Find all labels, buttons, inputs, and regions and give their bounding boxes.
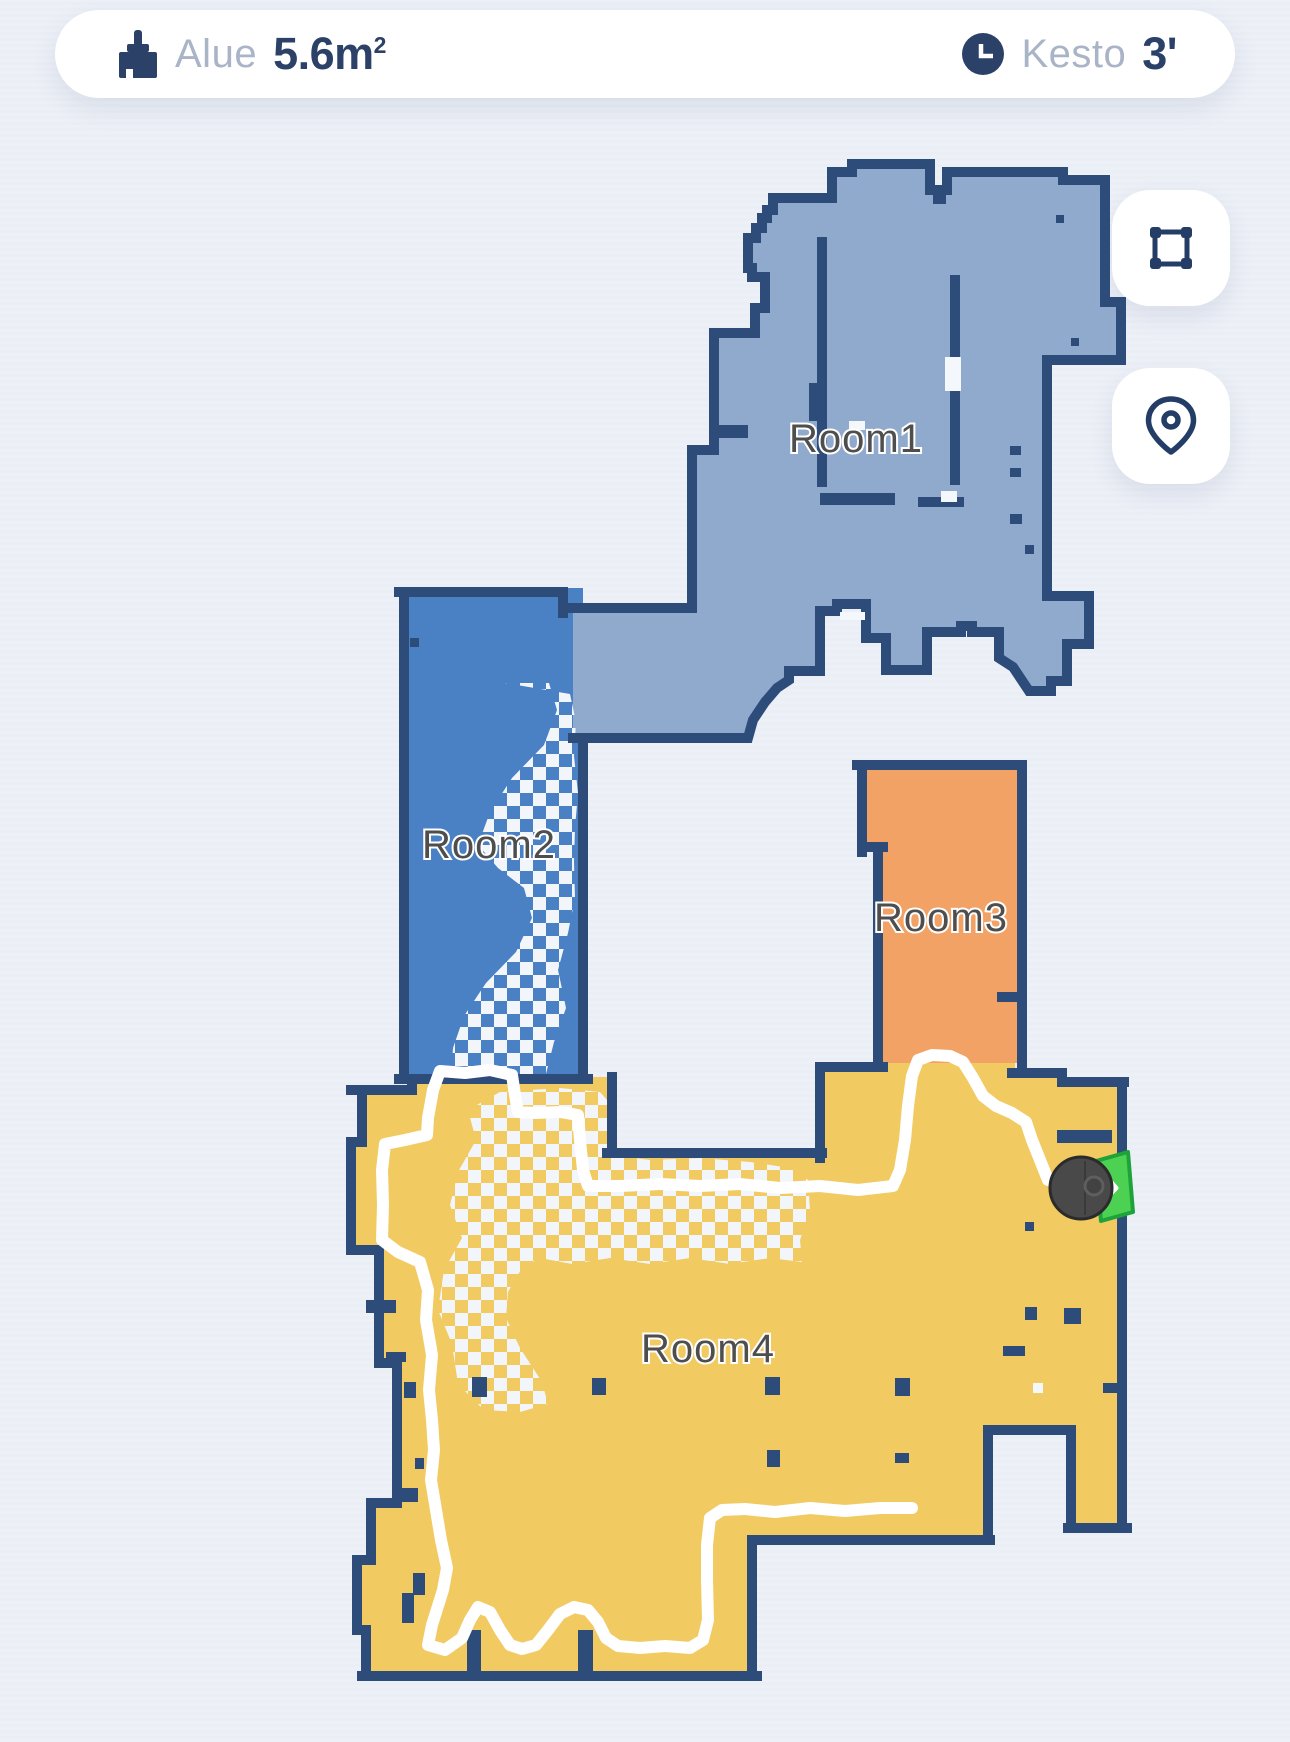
wall-mark bbox=[366, 1300, 396, 1313]
room-label-room4: Room4 bbox=[641, 1327, 775, 1371]
wall-mark bbox=[1010, 468, 1021, 477]
wall-mark bbox=[950, 391, 960, 485]
wall-mark bbox=[1025, 1222, 1034, 1231]
wall-mark bbox=[809, 383, 818, 421]
wall-mark bbox=[410, 638, 419, 647]
wall-mark bbox=[718, 425, 748, 438]
wall-mark bbox=[592, 1378, 606, 1395]
wall-mark bbox=[1071, 338, 1079, 346]
wall-mark bbox=[1025, 1307, 1037, 1320]
wall-mark bbox=[933, 190, 946, 204]
floor-map[interactable]: Room4Room3Room2Room1 bbox=[0, 0, 1290, 1742]
door-gap bbox=[1033, 1383, 1043, 1393]
wall-mark bbox=[767, 1450, 780, 1467]
wall-mark bbox=[386, 1352, 406, 1362]
wall-mark bbox=[467, 1630, 481, 1676]
wall-mark bbox=[404, 1382, 416, 1398]
room-label-room3: Room3 bbox=[874, 896, 1008, 940]
wall-mark bbox=[413, 1573, 425, 1595]
wall-mark bbox=[1103, 1383, 1118, 1393]
wall-mark bbox=[820, 493, 895, 505]
wall-mark bbox=[578, 1630, 593, 1676]
wall-mark bbox=[1010, 446, 1021, 455]
wall-mark bbox=[1056, 215, 1064, 223]
room-label-room1: Room1 bbox=[789, 417, 923, 461]
wall-mark bbox=[402, 1593, 414, 1623]
wall-mark bbox=[1010, 514, 1022, 524]
wall-mark bbox=[1025, 545, 1034, 554]
room-label-room2: Room2 bbox=[422, 823, 556, 867]
wall-mark bbox=[472, 1377, 487, 1397]
wall-mark bbox=[1003, 1346, 1025, 1356]
wall-mark bbox=[396, 1488, 418, 1502]
robot-marker bbox=[1050, 1157, 1112, 1219]
wall-mark bbox=[765, 1377, 780, 1395]
wall-mark bbox=[415, 1458, 424, 1469]
wall-mark bbox=[1064, 1308, 1081, 1324]
door-gap bbox=[945, 357, 961, 391]
wall-mark bbox=[895, 1453, 909, 1463]
wall-mark bbox=[1057, 1130, 1112, 1143]
wall-mark bbox=[950, 275, 960, 357]
wall-mark bbox=[895, 1378, 910, 1396]
door-gap bbox=[941, 491, 957, 502]
door-gap bbox=[840, 612, 865, 620]
